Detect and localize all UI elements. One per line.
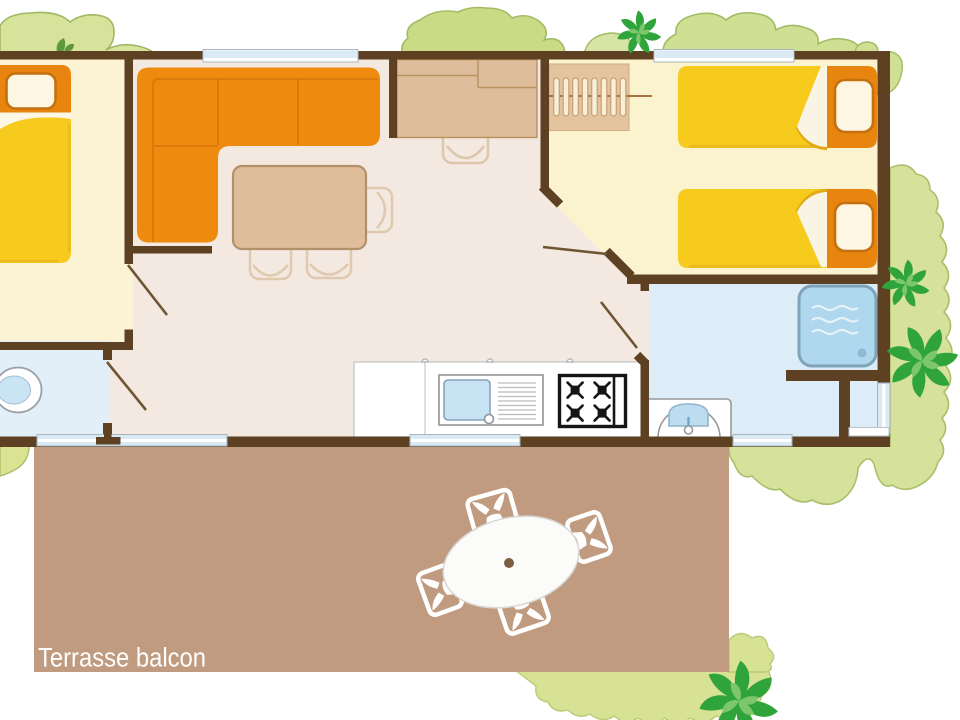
svg-text:Terrasse balcon: Terrasse balcon bbox=[38, 643, 206, 673]
